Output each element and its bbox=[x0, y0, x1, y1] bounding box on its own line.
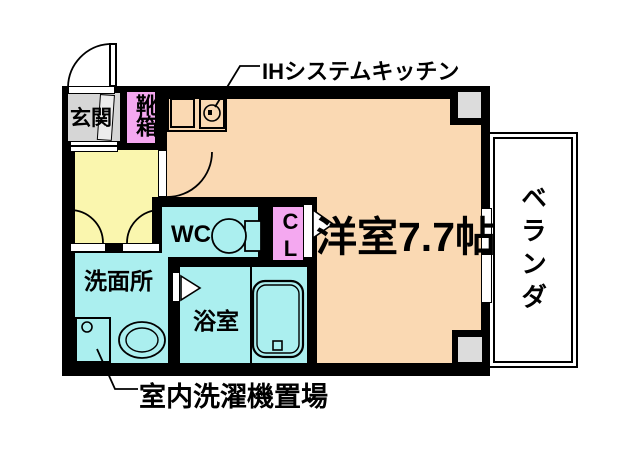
closet-door-strip bbox=[303, 204, 313, 258]
entrance-door-opening bbox=[68, 86, 115, 94]
bathroom-door-strip bbox=[172, 272, 180, 302]
floorplan-canvas: ベランダ bbox=[0, 0, 640, 455]
shoe-cabinet-label: 靴箱 bbox=[129, 94, 161, 136]
entrance-step-strip2 bbox=[70, 146, 118, 152]
hallway bbox=[75, 150, 158, 243]
entrance-door-leaf bbox=[109, 43, 117, 87]
kitchen-sink-icon bbox=[170, 98, 195, 128]
hall-wc-opening bbox=[122, 243, 160, 252]
veranda-label: ベランダ bbox=[515, 184, 552, 316]
pillar-top-right-core bbox=[458, 92, 481, 118]
kitchen-callout-label: IHシステムキッチン bbox=[262, 54, 459, 86]
closet-label: CL bbox=[277, 209, 303, 263]
laundry-callout-label: 室内洗濯機置場 bbox=[139, 375, 328, 414]
entrance-door-arc bbox=[68, 44, 109, 87]
hall-room-door-leaf bbox=[158, 150, 167, 197]
veranda-area: ベランダ bbox=[488, 132, 578, 368]
main-room-label: 洋室7.7帖 bbox=[316, 203, 496, 263]
bathtub-alcove-wall bbox=[250, 267, 252, 363]
bathroom-label: 浴室 bbox=[193, 302, 239, 336]
wc-label: WC bbox=[171, 221, 211, 249]
ih-stove-icon bbox=[199, 98, 225, 129]
hall-washroom-opening bbox=[70, 243, 106, 252]
veranda-inner-border: ベランダ bbox=[493, 137, 573, 363]
entrance-label: 玄関 bbox=[70, 102, 112, 132]
pillar-bottom-right-core bbox=[458, 337, 482, 362]
washroom-label: 洗面所 bbox=[84, 262, 153, 296]
